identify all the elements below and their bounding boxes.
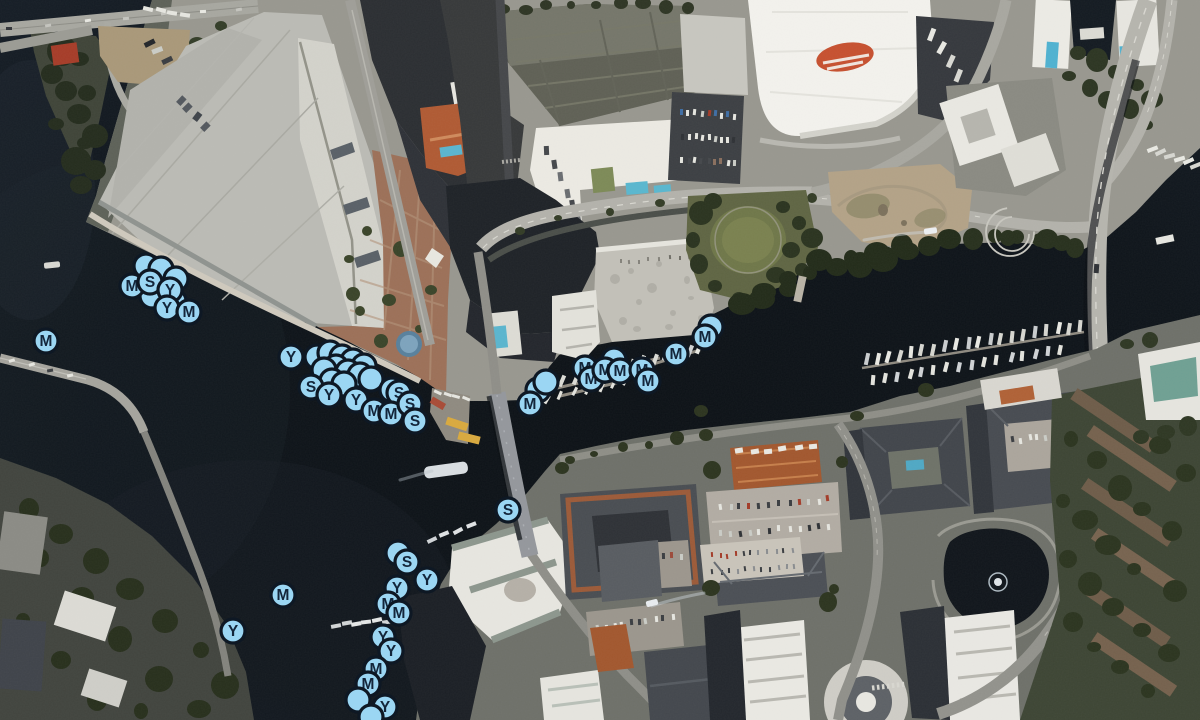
- svg-text:S: S: [145, 274, 155, 291]
- svg-text:Y: Y: [386, 643, 397, 660]
- svg-text:Y: Y: [422, 572, 433, 589]
- svg-text:M: M: [524, 396, 537, 413]
- svg-text:M: M: [699, 329, 712, 346]
- svg-text:Y: Y: [324, 387, 335, 404]
- svg-text:S: S: [410, 413, 420, 430]
- svg-text:M: M: [642, 373, 655, 390]
- svg-text:Y: Y: [286, 349, 297, 366]
- svg-text:M: M: [393, 605, 406, 622]
- svg-text:S: S: [306, 379, 316, 396]
- svg-text:Y: Y: [228, 623, 239, 640]
- svg-text:M: M: [614, 363, 627, 380]
- svg-text:M: M: [670, 346, 683, 363]
- svg-text:Y: Y: [351, 392, 362, 409]
- svg-text:M: M: [183, 304, 196, 321]
- svg-text:M: M: [385, 406, 398, 423]
- svg-text:S: S: [503, 502, 513, 519]
- svg-text:Y: Y: [162, 300, 173, 317]
- svg-text:S: S: [402, 554, 412, 571]
- svg-text:M: M: [40, 333, 53, 350]
- svg-text:M: M: [277, 587, 290, 604]
